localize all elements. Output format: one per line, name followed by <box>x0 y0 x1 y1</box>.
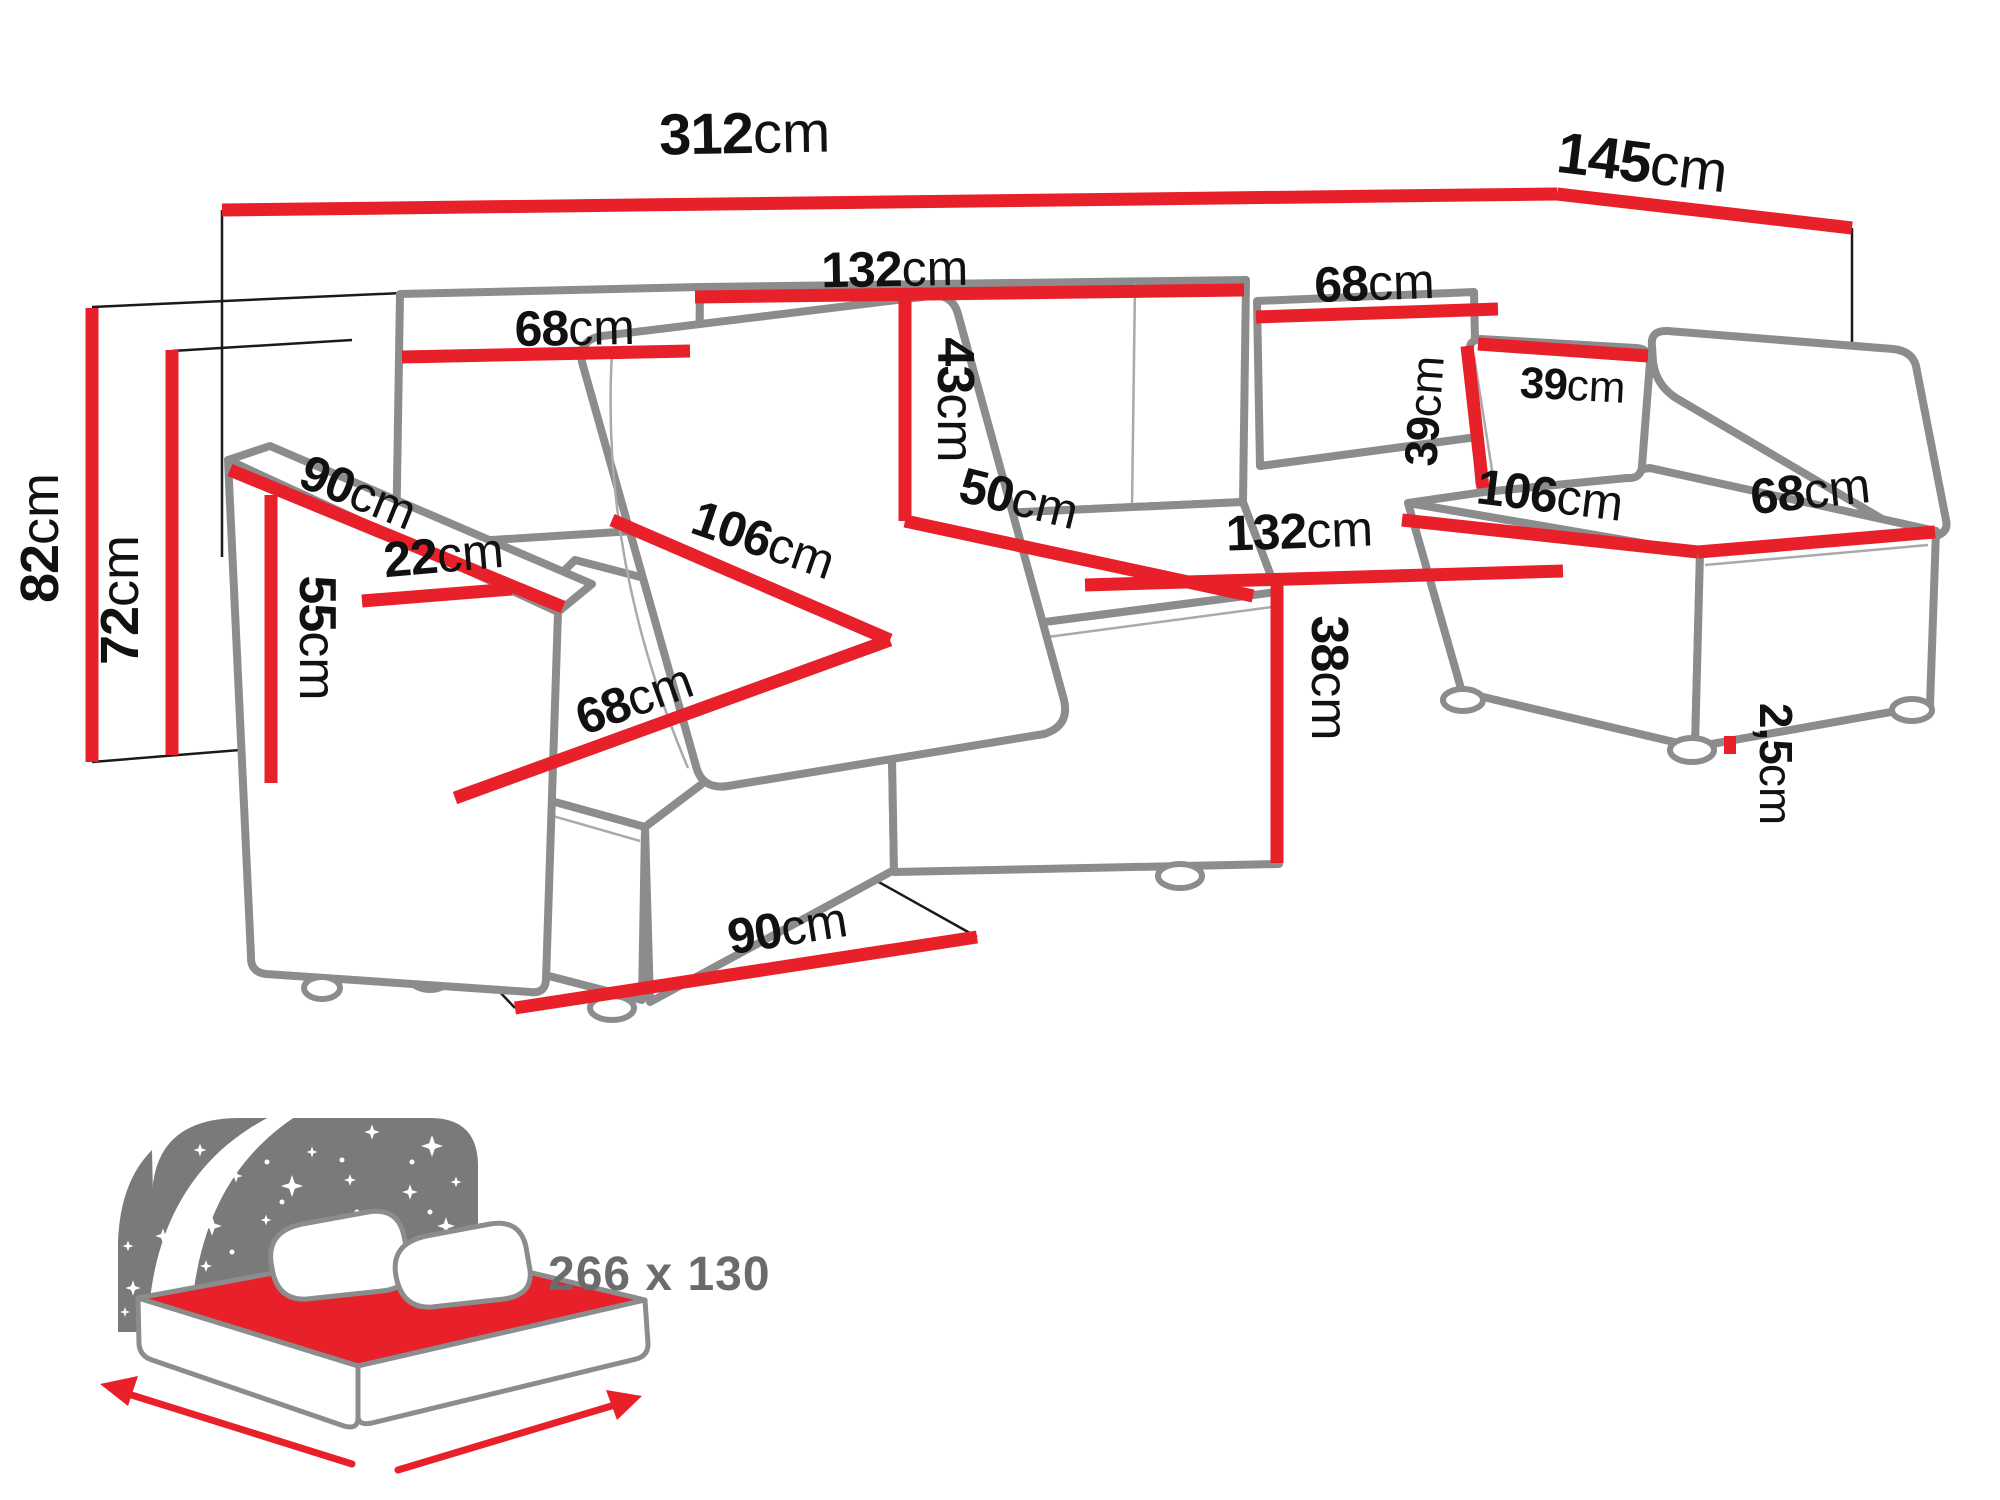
dim-label-total-height: 82cm <box>10 473 70 603</box>
sofa-diagram-canvas: 312cm 145cm 68cm 132cm 68cm 39cm 90cm 22… <box>0 0 2000 1500</box>
dim-line-total-width <box>222 194 1557 210</box>
dim-label-pillow-height: 39cm <box>1394 354 1454 468</box>
sofa-outline <box>228 280 1947 1020</box>
dim-label-frame-height: 72cm <box>90 535 150 665</box>
dim-label-armrest-width: 22cm <box>381 522 506 588</box>
sofa-dimension-diagram-page: 312cm 145cm 68cm 132cm 68cm 39cm 90cm 22… <box>0 0 2000 1500</box>
dim-label-mid-seat-width: 132cm <box>1225 500 1374 561</box>
bed-pillow-left <box>271 1211 410 1299</box>
dim-tick-leg-height <box>1724 736 1736 754</box>
dim-label-total-width: 312cm <box>659 100 831 168</box>
sleeping-area-size-label: 266 x 130 <box>548 1248 771 1301</box>
dim-label-back-mid-width: 132cm <box>821 240 969 299</box>
dim-label-leg-height: 2,5cm <box>1750 703 1802 825</box>
dim-line-back-mid-width <box>695 290 1244 297</box>
dim-label-back-right-width: 68cm <box>1313 253 1435 313</box>
dim-label-armrest-height: 55cm <box>288 575 346 700</box>
sleeping-area-icon: 266 x 130 <box>100 1094 771 1470</box>
bed-width-arrowhead <box>100 1376 138 1406</box>
dim-label-pillow-width: 39cm <box>1519 358 1627 412</box>
dim-label-seat-height: 38cm <box>1300 615 1358 740</box>
dim-label-back-height: 43cm <box>926 337 984 462</box>
bed-length-arrow <box>398 1404 618 1470</box>
dim-label-back-left-width: 68cm <box>514 299 635 357</box>
